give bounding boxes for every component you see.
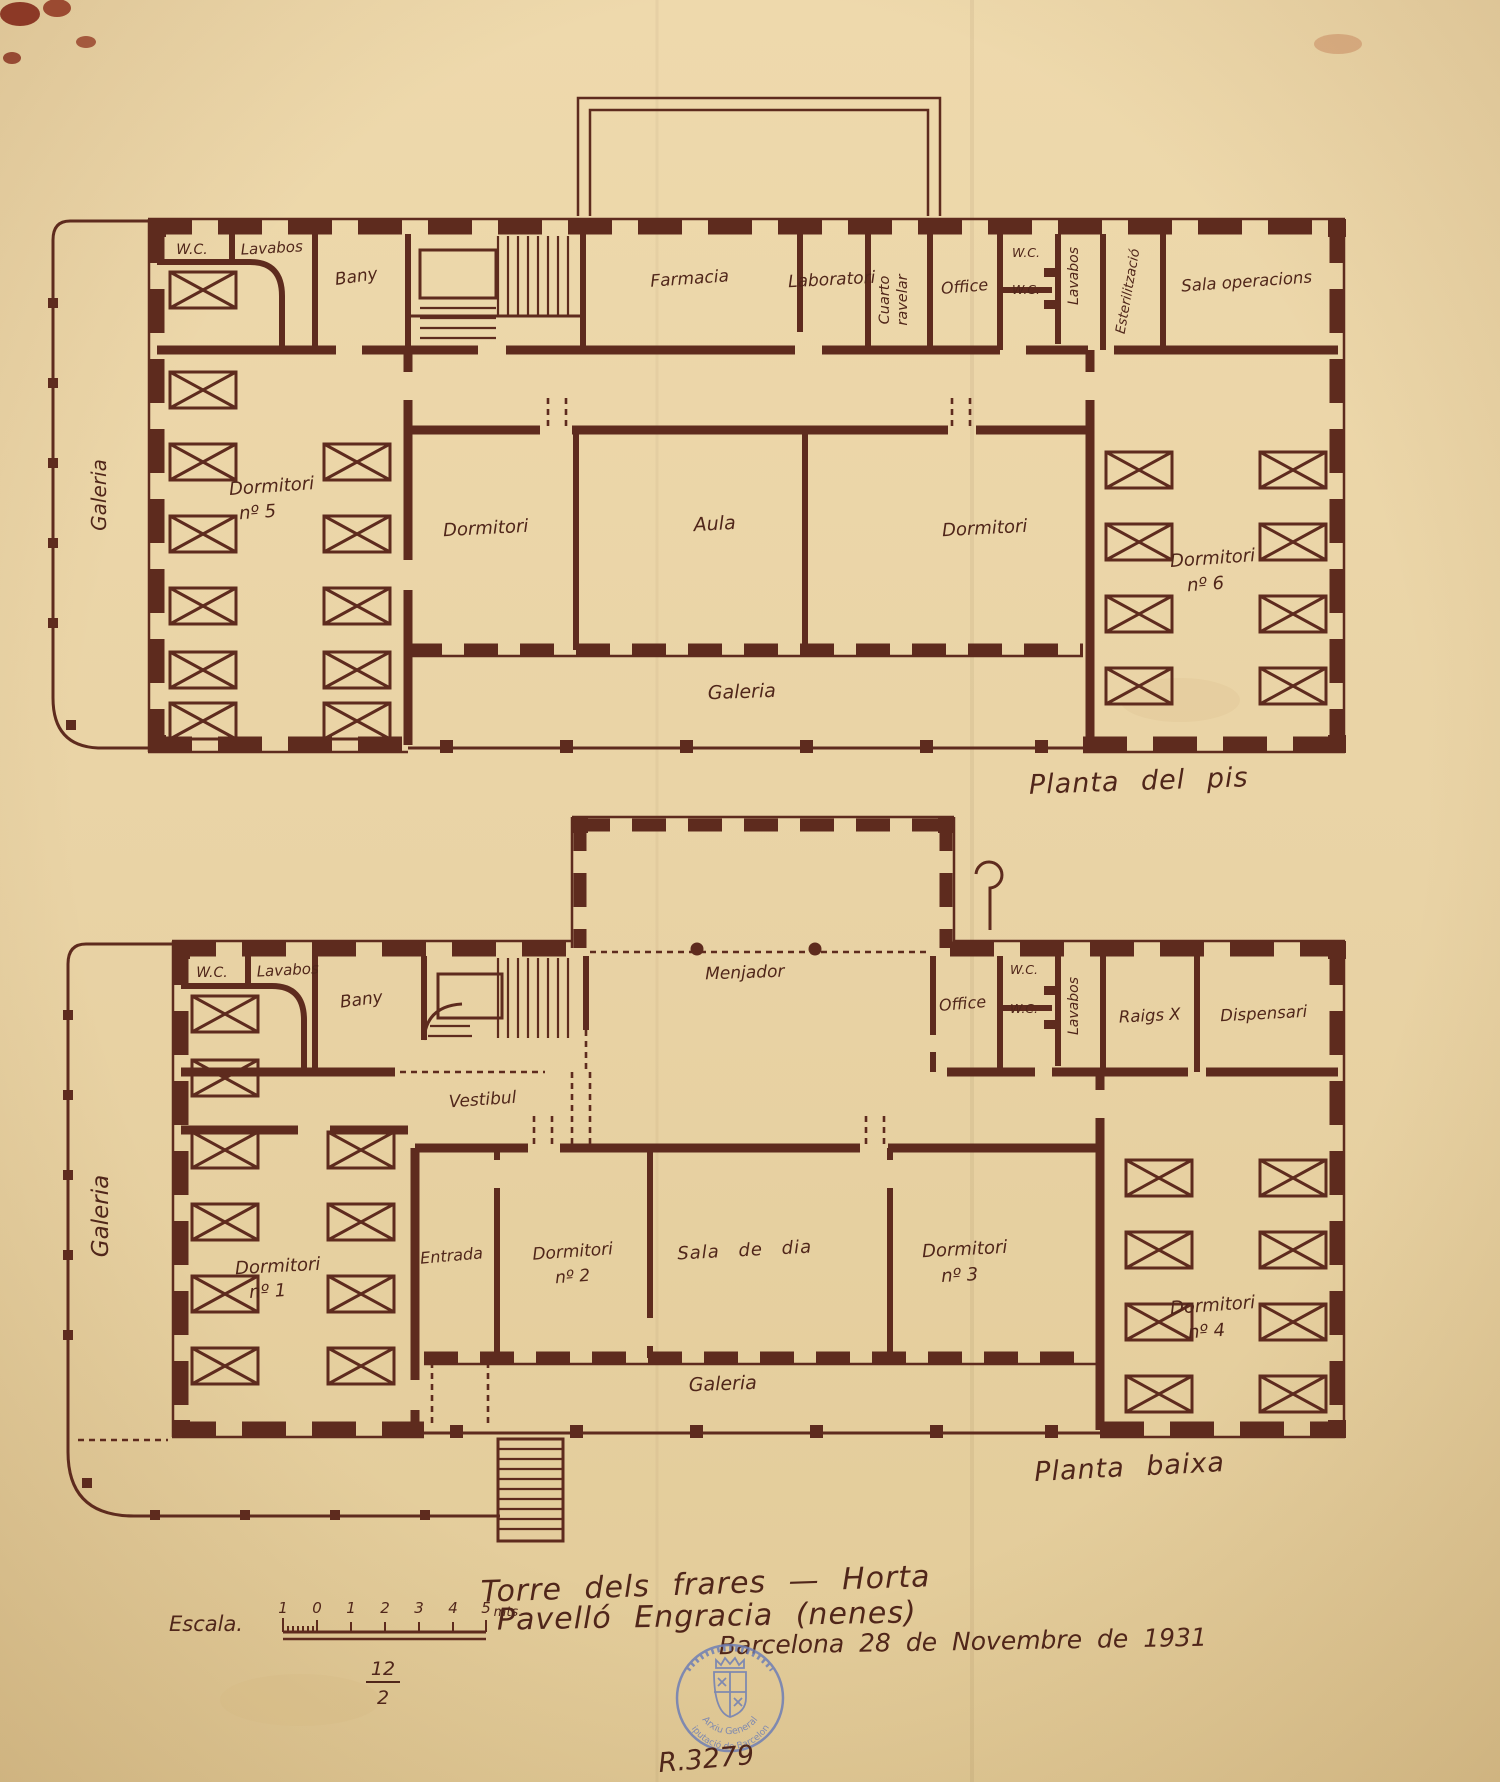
room-label-lavabos-lower: Lavabos [256, 959, 319, 980]
fraction-numerator: 12 [371, 1658, 395, 1680]
room-label-dormitori-mid-left: Dormitori [443, 516, 529, 541]
room-label-wc-a-lower: W.C. [1010, 962, 1038, 977]
room-label-dormitori1-2: nº 1 [249, 1280, 287, 1303]
scale-tick-2: 1 [346, 1599, 356, 1617]
fraction-denominator: 2 [377, 1687, 389, 1709]
room-label-dormitori-mid-right: Dormitori [942, 516, 1028, 541]
scale-label: Escala. [169, 1612, 243, 1636]
room-label-wc-b: W.C. [1012, 282, 1040, 297]
scale-tick-3: 2 [380, 1599, 390, 1617]
scale-tick-4: 3 [414, 1599, 424, 1617]
room-label-dormitori3-2: nº 3 [941, 1264, 979, 1287]
scale-unit: mts. [494, 1605, 523, 1620]
room-label-lavabos2-lower: Lavabos [1066, 977, 1082, 1035]
scale-tick-5: 4 [448, 1599, 458, 1617]
room-label-lavabos: Lavabos [240, 237, 303, 258]
room-label-dormitori1-1: Dormitori [235, 1254, 321, 1279]
room-label-cuarto-revelar-2: ravelar [895, 273, 911, 325]
drawing-sheet: W.C. Lavabos Bany Farmacia Laboratori Cu… [0, 0, 1500, 1782]
room-label-wc-lower: W.C. [196, 965, 227, 981]
room-label-lavabos2: Lavabos [1066, 247, 1082, 305]
room-label-cuarto-revelar-1: Cuarto [877, 276, 893, 325]
room-label-aula: Aula [691, 512, 736, 536]
room-label-dormitori2-2: nº 2 [554, 1266, 590, 1288]
scale-tick-0: 1 [278, 1599, 288, 1617]
room-label-wc: W.C. [176, 242, 207, 258]
gallery-left-label-lower: Galeria [88, 1175, 114, 1257]
scale-tick-1: 0 [312, 1599, 322, 1617]
gallery-bottom-label-upper: Galeria [707, 680, 776, 704]
scale-tick-6: 5 [481, 1599, 491, 1617]
room-label-dormitori4-2: nº 4 [1187, 1320, 1225, 1344]
gallery-bottom-label-lower: Galeria [688, 1372, 757, 1396]
gallery-left-label-upper: Galeria [87, 459, 111, 531]
room-label-dormitori3-1: Dormitori [922, 1237, 1008, 1262]
room-label-dormitori5-2: nº 5 [238, 501, 276, 525]
floor-plan-drawing: W.C. Lavabos Bany Farmacia Laboratori Cu… [0, 0, 1500, 1782]
room-label-raigs-x: Raigs X [1118, 1004, 1181, 1026]
room-label-dormitori6-2: nº 6 [1186, 573, 1224, 597]
room-label-menjador: Menjador [705, 962, 786, 985]
room-label-wc-b-lower: W.C. [1010, 1001, 1038, 1016]
room-label-wc-a: W.C. [1012, 245, 1040, 260]
